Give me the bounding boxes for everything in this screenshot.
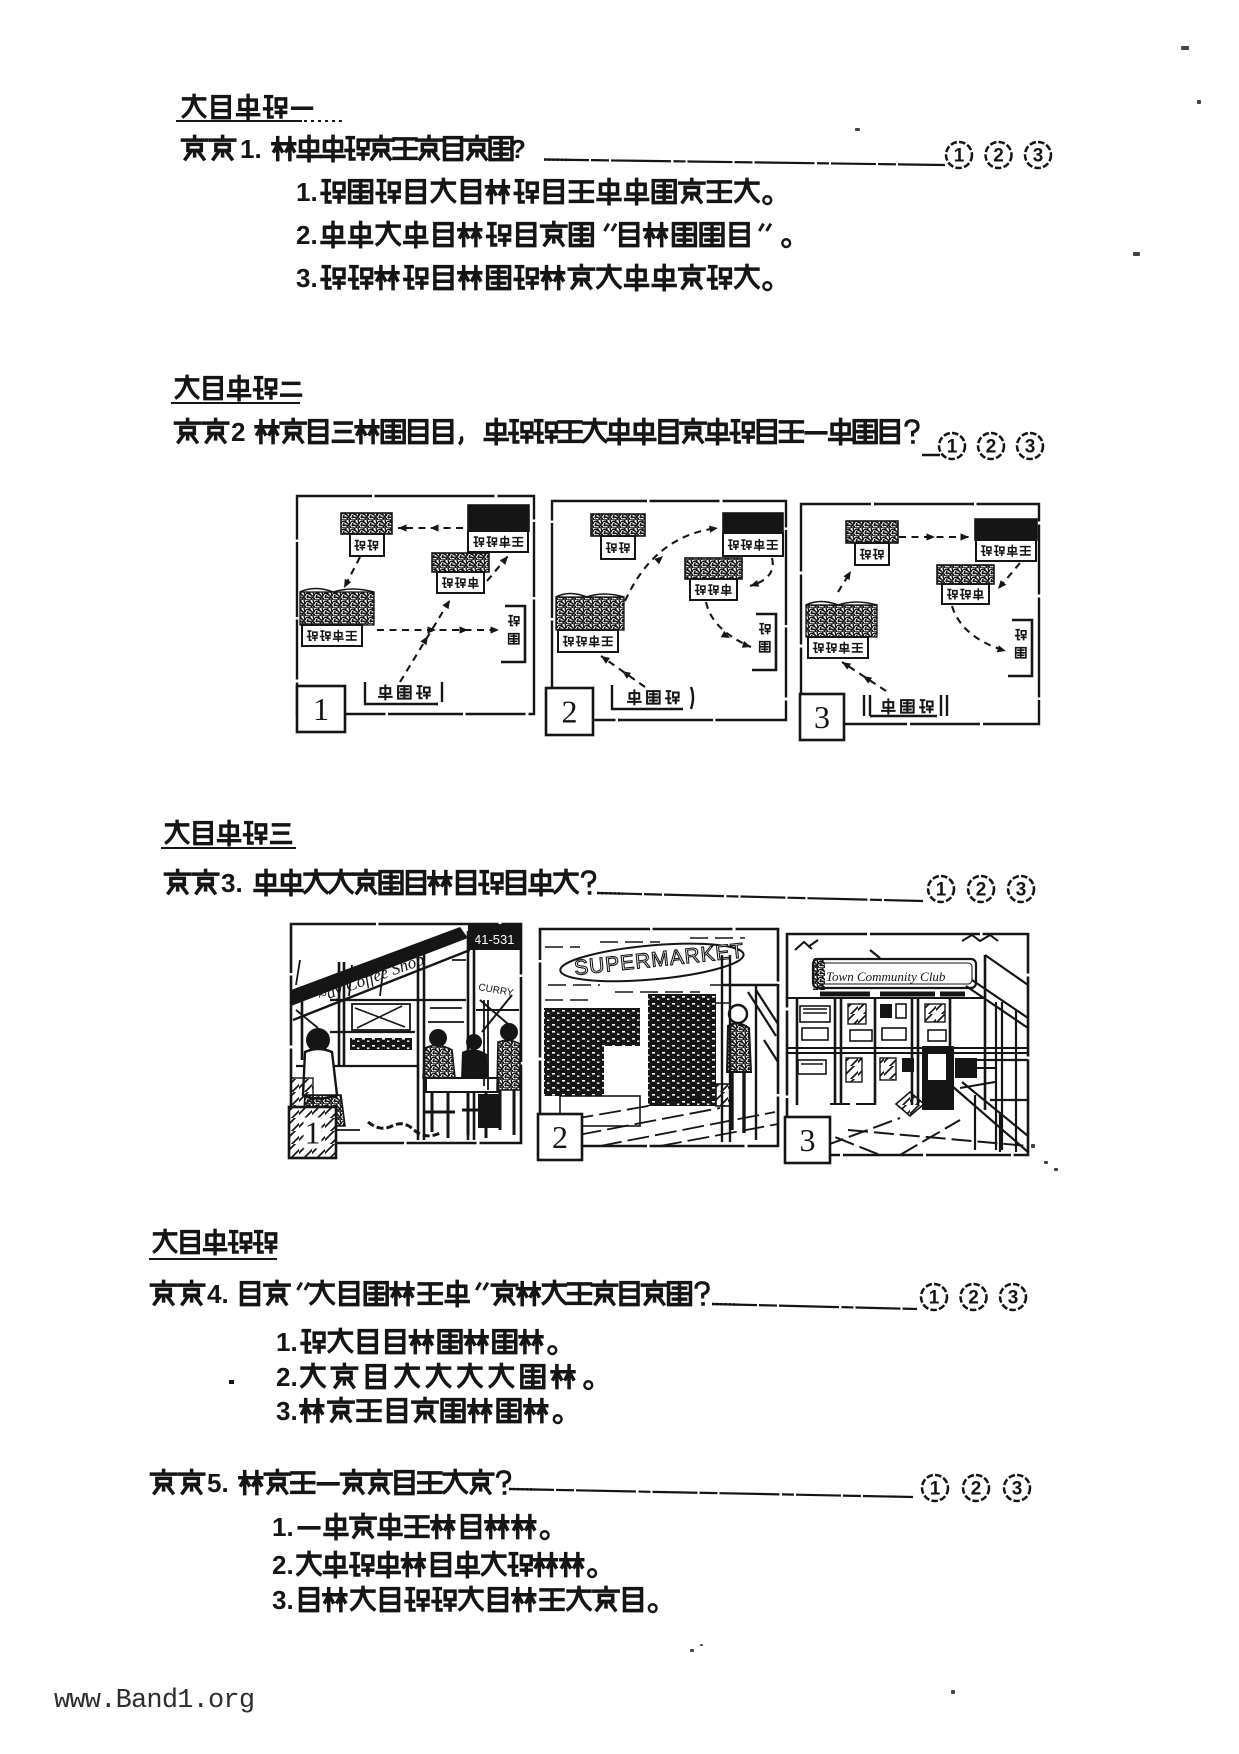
svg-text:3.: 3. — [276, 1396, 298, 1426]
svg-text:1: 1 — [313, 691, 329, 727]
svg-text:5.: 5. — [207, 1468, 229, 1498]
svg-text:2.: 2. — [272, 1550, 294, 1580]
svg-text:2.: 2. — [296, 220, 318, 250]
svg-text:4.: 4. — [207, 1279, 229, 1309]
svg-text:1: 1 — [929, 1288, 940, 1309]
svg-text:Town Community Club: Town Community Club — [826, 969, 946, 984]
svg-text:1: 1 — [930, 1479, 941, 1500]
svg-text:2: 2 — [231, 417, 245, 447]
svg-text:2: 2 — [968, 1288, 979, 1309]
svg-text:1.: 1. — [276, 1327, 298, 1357]
svg-text:?: ? — [510, 134, 526, 164]
svg-text:3.: 3. — [296, 263, 318, 293]
svg-text:1: 1 — [954, 146, 965, 167]
svg-text:1: 1 — [947, 437, 958, 458]
svg-text:3: 3 — [800, 1122, 816, 1158]
svg-text:2.: 2. — [276, 1362, 298, 1392]
svg-text:3: 3 — [1012, 1479, 1023, 1500]
svg-text:3: 3 — [1008, 1288, 1019, 1309]
svg-text:1.: 1. — [272, 1512, 294, 1542]
svg-text:1: 1 — [305, 1115, 321, 1151]
svg-text:2: 2 — [562, 694, 578, 730]
svg-text:2: 2 — [976, 880, 987, 901]
svg-text:3: 3 — [1033, 146, 1044, 167]
svg-text:3.: 3. — [272, 1585, 294, 1615]
svg-text:3.: 3. — [221, 868, 243, 898]
svg-text:1.: 1. — [240, 134, 262, 164]
svg-text:2: 2 — [993, 146, 1004, 167]
svg-text:1.: 1. — [296, 177, 318, 207]
svg-text:3: 3 — [814, 699, 830, 735]
svg-text:CURRY: CURRY — [477, 982, 514, 999]
svg-text:www.Band1.org: www.Band1.org — [54, 1686, 254, 1716]
svg-text:2: 2 — [986, 437, 997, 458]
svg-text:41-531: 41-531 — [474, 932, 514, 947]
svg-text:2: 2 — [552, 1119, 568, 1155]
svg-text:2: 2 — [971, 1479, 982, 1500]
svg-text:1: 1 — [936, 880, 947, 901]
svg-text:3: 3 — [1025, 437, 1036, 458]
svg-text:3: 3 — [1016, 880, 1027, 901]
